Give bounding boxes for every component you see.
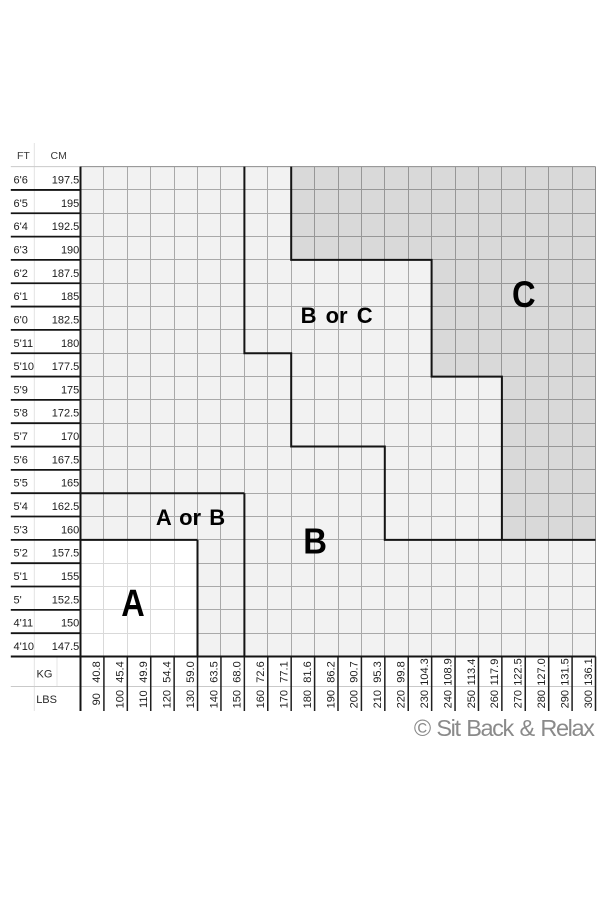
- svg-text:B: B: [303, 522, 327, 562]
- svg-text:250: 250: [466, 690, 478, 708]
- svg-text:FT: FT: [17, 150, 30, 162]
- svg-text:A: A: [121, 583, 144, 625]
- svg-text:131.5: 131.5: [559, 658, 571, 686]
- svg-text:6'4: 6'4: [14, 221, 28, 233]
- svg-text:192.5: 192.5: [52, 221, 80, 233]
- svg-text:270: 270: [513, 690, 525, 708]
- svg-text:5'8: 5'8: [14, 408, 28, 420]
- svg-text:113.4: 113.4: [466, 659, 478, 686]
- svg-text:5'6: 5'6: [14, 454, 28, 466]
- svg-text:5'10: 5'10: [14, 361, 34, 373]
- svg-text:117.9: 117.9: [489, 659, 501, 686]
- svg-text:95.3: 95.3: [372, 661, 384, 682]
- svg-text:4'11: 4'11: [14, 618, 34, 630]
- svg-text:5'3: 5'3: [14, 524, 28, 536]
- svg-text:86.2: 86.2: [325, 661, 337, 682]
- svg-text:108.9: 108.9: [442, 658, 454, 686]
- svg-text:90: 90: [91, 693, 103, 705]
- svg-text:140: 140: [208, 690, 220, 708]
- svg-text:165: 165: [61, 478, 79, 490]
- svg-text:45.4: 45.4: [115, 661, 127, 682]
- svg-text:6'0: 6'0: [14, 314, 28, 326]
- svg-text:180: 180: [302, 690, 314, 708]
- svg-text:C: C: [512, 274, 536, 316]
- svg-text:190: 190: [325, 690, 337, 708]
- svg-text:200: 200: [349, 690, 361, 708]
- svg-text:40.8: 40.8: [91, 661, 103, 682]
- svg-text:136.1: 136.1: [583, 658, 595, 686]
- svg-text:157.5: 157.5: [52, 548, 80, 560]
- svg-text:120: 120: [161, 690, 173, 708]
- svg-text:220: 220: [396, 690, 408, 708]
- svg-text:4'10: 4'10: [14, 641, 34, 653]
- svg-text:5'2: 5'2: [14, 548, 28, 560]
- svg-text:99.8: 99.8: [396, 661, 408, 682]
- svg-text:300: 300: [583, 690, 595, 708]
- svg-text:160: 160: [255, 690, 267, 708]
- svg-text:122.5: 122.5: [513, 658, 525, 686]
- svg-text:5'9: 5'9: [14, 384, 28, 396]
- svg-text:170: 170: [279, 690, 291, 708]
- svg-text:54.4: 54.4: [161, 661, 173, 682]
- svg-text:© Sit Back & Relax: © Sit Back & Relax: [414, 715, 595, 741]
- svg-text:63.5: 63.5: [208, 661, 220, 682]
- svg-text:6'5: 6'5: [14, 198, 28, 210]
- svg-text:72.6: 72.6: [255, 661, 267, 682]
- svg-text:280: 280: [536, 690, 548, 708]
- svg-text:5'5: 5'5: [14, 478, 28, 490]
- svg-text:110: 110: [138, 690, 150, 708]
- svg-text:6'1: 6'1: [14, 291, 28, 303]
- svg-text:KG: KG: [37, 669, 53, 681]
- svg-text:182.5: 182.5: [52, 314, 80, 326]
- svg-text:152.5: 152.5: [52, 594, 80, 606]
- svg-text:150: 150: [61, 618, 79, 630]
- svg-text:180: 180: [61, 338, 79, 350]
- svg-text:187.5: 187.5: [52, 268, 80, 280]
- svg-text:127.0: 127.0: [536, 658, 548, 686]
- svg-text:B or C: B or C: [301, 303, 373, 328]
- svg-text:5'4: 5'4: [14, 501, 28, 513]
- svg-text:240: 240: [442, 690, 454, 708]
- svg-text:197.5: 197.5: [52, 175, 80, 187]
- svg-text:160: 160: [61, 524, 79, 536]
- svg-text:170: 170: [61, 431, 79, 443]
- svg-text:155: 155: [61, 571, 79, 583]
- svg-text:6'3: 6'3: [14, 244, 28, 256]
- svg-text:172.5: 172.5: [52, 408, 80, 420]
- svg-text:81.6: 81.6: [302, 661, 314, 682]
- svg-text:49.9: 49.9: [138, 661, 150, 682]
- svg-text:150: 150: [232, 690, 244, 708]
- svg-text:LBS: LBS: [36, 694, 57, 706]
- svg-text:6'6: 6'6: [14, 175, 28, 187]
- svg-text:A or B: A or B: [156, 505, 225, 530]
- svg-text:210: 210: [372, 690, 384, 708]
- svg-text:5'7: 5'7: [14, 431, 28, 443]
- svg-text:5'1: 5'1: [14, 571, 28, 583]
- svg-text:77.1: 77.1: [279, 661, 291, 682]
- svg-text:177.5: 177.5: [52, 361, 80, 373]
- svg-text:162.5: 162.5: [52, 501, 80, 513]
- svg-text:5'11: 5'11: [14, 338, 34, 350]
- svg-text:6'2: 6'2: [14, 268, 28, 280]
- svg-text:185: 185: [61, 291, 79, 303]
- svg-text:100: 100: [115, 690, 127, 708]
- svg-text:167.5: 167.5: [52, 454, 80, 466]
- svg-text:175: 175: [61, 384, 79, 396]
- svg-text:290: 290: [559, 690, 571, 708]
- svg-text:195: 195: [61, 198, 79, 210]
- svg-text:190: 190: [61, 244, 79, 256]
- svg-text:147.5: 147.5: [52, 641, 80, 653]
- svg-text:CM: CM: [51, 150, 67, 162]
- svg-text:90.7: 90.7: [349, 661, 361, 682]
- svg-text:130: 130: [185, 690, 197, 708]
- svg-text:104.3: 104.3: [419, 658, 431, 686]
- svg-text:5': 5': [14, 594, 22, 606]
- svg-text:230: 230: [419, 690, 431, 708]
- svg-text:260: 260: [489, 690, 501, 708]
- svg-text:68.0: 68.0: [232, 661, 244, 682]
- svg-text:59.0: 59.0: [185, 661, 197, 682]
